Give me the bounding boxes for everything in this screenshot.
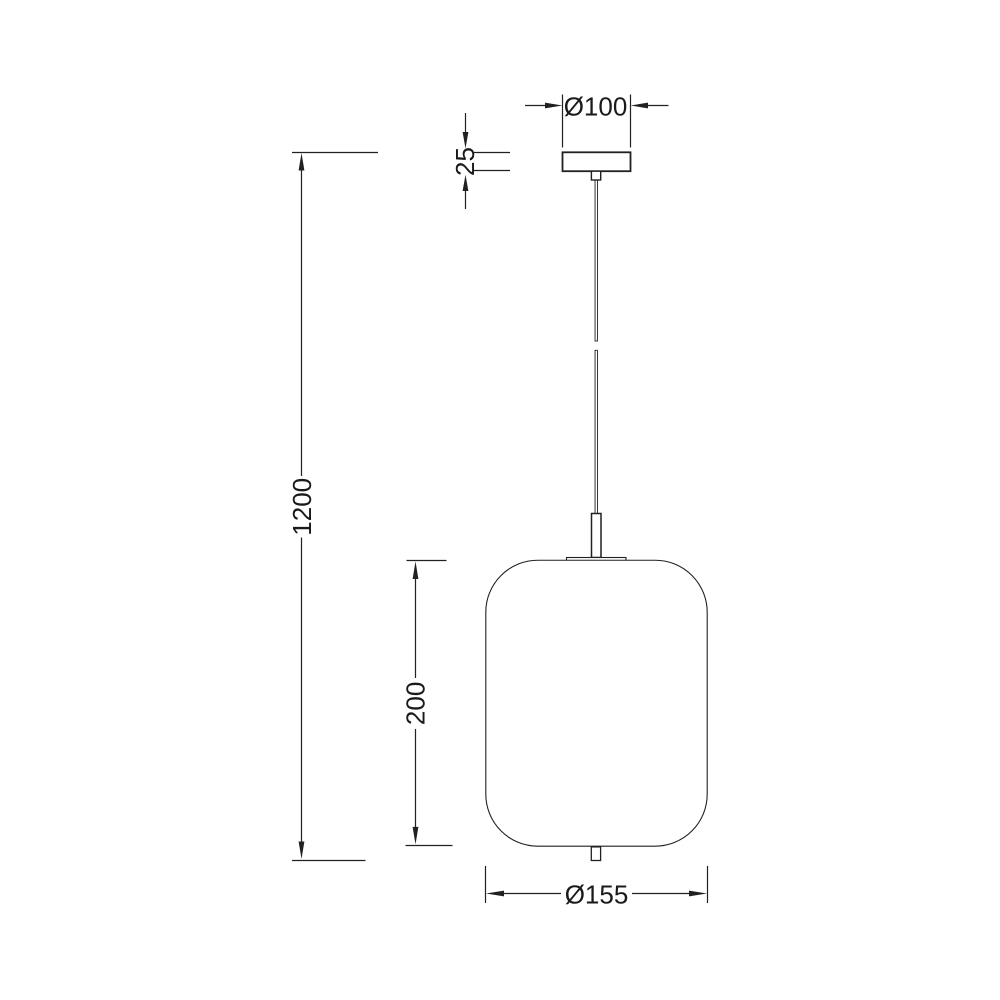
svg-text:200: 200 [401,682,431,725]
svg-text:Ø100: Ø100 [564,91,628,121]
svg-text:1200: 1200 [287,478,317,536]
svg-text:25: 25 [450,147,480,176]
svg-text:Ø155: Ø155 [565,879,629,909]
